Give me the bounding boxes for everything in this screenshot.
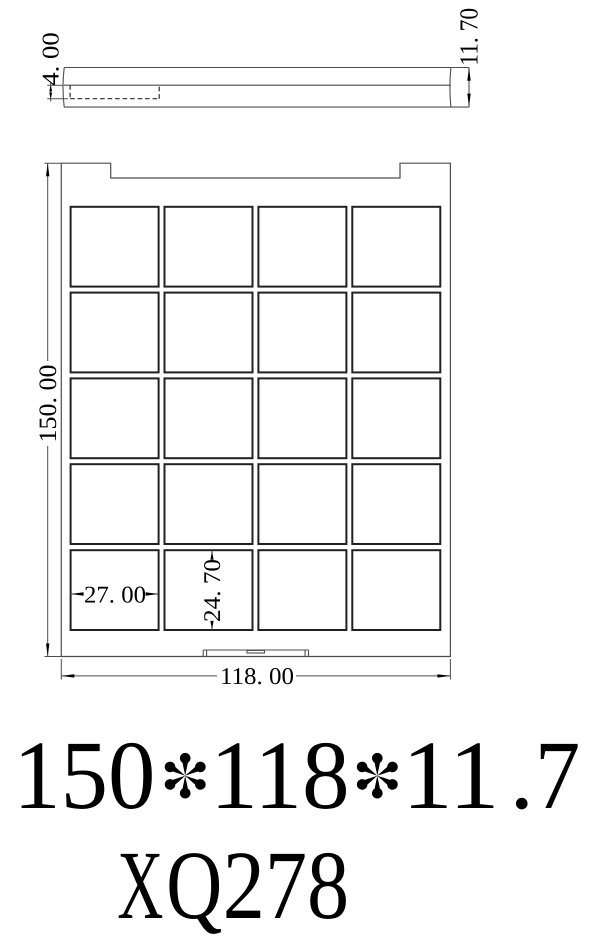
svg-text:118: 118 (210, 722, 349, 830)
svg-text:X: X (117, 832, 163, 940)
svg-text:27. 00: 27. 00 (84, 583, 146, 609)
svg-text:7: 7 (535, 722, 581, 830)
svg-text:150. 00: 150. 00 (35, 365, 62, 443)
svg-text:4. 00: 4. 00 (39, 32, 65, 86)
svg-text:.: . (510, 722, 535, 830)
svg-text:11. 70: 11. 70 (455, 8, 484, 66)
svg-text:11: 11 (402, 722, 499, 830)
svg-text:150: 150 (13, 722, 155, 830)
svg-text:24. 70: 24. 70 (200, 559, 226, 622)
svg-text:278: 278 (223, 832, 349, 940)
svg-text:118. 00: 118. 00 (220, 664, 294, 690)
svg-text:Q: Q (166, 832, 222, 940)
